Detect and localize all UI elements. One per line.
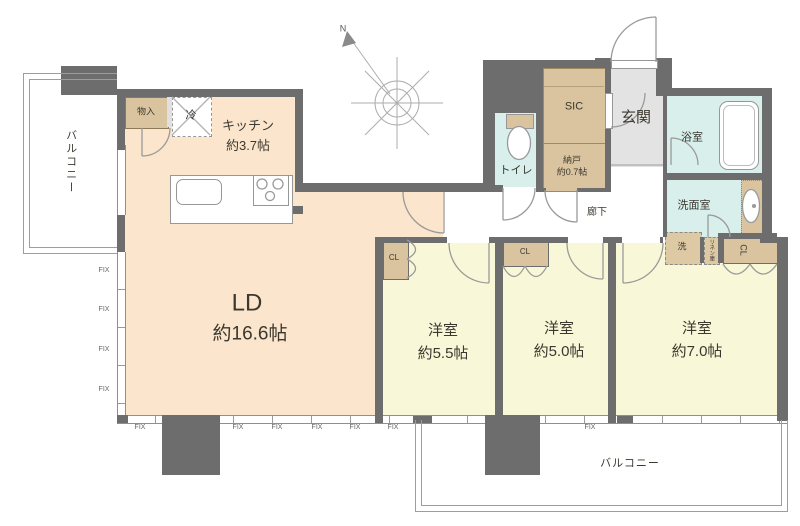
wall-segment — [483, 113, 495, 192]
entry-closet-label: 物入 — [137, 107, 155, 118]
wall-segment — [495, 185, 503, 192]
compass-rose — [342, 31, 443, 149]
storage-door — [545, 190, 577, 222]
storage-label: 納戸 約0.7帖 — [557, 154, 588, 178]
wall-segment — [595, 58, 611, 67]
wall-segment — [577, 188, 611, 192]
washer-label: 洗 — [677, 242, 686, 253]
kitchen-sink — [176, 179, 222, 205]
storage-size: 約0.7帖 — [557, 166, 588, 178]
wall-segment — [295, 97, 303, 192]
shoe-closet-shelf-line — [544, 86, 604, 87]
bedroom2-name: 洋室 — [534, 317, 585, 340]
toilet-door — [503, 188, 535, 220]
wall-segment — [762, 96, 772, 237]
refrigerator-label: 冷 — [186, 109, 197, 122]
fix-label: FIX — [233, 424, 244, 432]
wall-segment — [536, 62, 543, 192]
entrance-door-frame — [611, 60, 658, 69]
balcony-left-label: バルコニー — [63, 130, 76, 195]
kitchen-side-window — [117, 145, 126, 215]
hallway-label: 廊下 — [587, 207, 607, 219]
wall-segment — [660, 237, 663, 243]
shoe-closet-label: SIC — [565, 100, 583, 113]
bedroom1-closet-label: CL — [389, 253, 399, 263]
wall-segment — [543, 188, 546, 192]
wall-segment — [375, 237, 447, 243]
fix-label: FIX — [99, 306, 110, 314]
wall-segment — [503, 237, 568, 243]
stove — [253, 175, 289, 206]
bedroom2-closet-label: CL — [520, 247, 530, 257]
wall-segment — [667, 173, 762, 180]
vanity-counter — [741, 180, 764, 235]
bedroom2-label: 洋室 約5.0帖 — [534, 317, 585, 363]
wall-segment — [608, 237, 616, 423]
fix-label: FIX — [99, 267, 110, 275]
balcony-main-label: バルコニー — [600, 457, 660, 470]
fix-label: FIX — [99, 346, 110, 354]
bedroom1-size: 約5.5帖 — [418, 342, 469, 365]
wall-segment — [663, 88, 667, 237]
wall-segment — [672, 88, 772, 96]
shoe-closet-door-leaf — [605, 93, 613, 129]
fix-label: FIX — [99, 386, 110, 394]
fix-window-left — [117, 252, 126, 415]
living-dining-size: 約16.6帖 — [213, 324, 288, 347]
wall-segment — [117, 215, 125, 252]
wall-segment — [495, 237, 503, 423]
living-dining-entry-floor — [295, 192, 443, 237]
entrance-door-arc — [611, 17, 656, 62]
fix-label: FIX — [585, 424, 596, 432]
bathroom-label: 浴室 — [681, 131, 703, 144]
bathtub-inner — [723, 105, 755, 166]
kitchen-name: キッチン — [222, 116, 274, 136]
bedroom2-size: 約5.0帖 — [534, 340, 585, 363]
bedroom3-size: 約7.0帖 — [672, 340, 723, 363]
north-label: N — [340, 24, 347, 35]
wall-segment — [700, 237, 704, 263]
wall-segment — [616, 237, 622, 243]
linen-label: リネン庫 — [708, 239, 715, 261]
washroom-label: 洗面室 — [678, 199, 711, 212]
wall-segment — [777, 237, 788, 421]
wall-segment — [483, 60, 611, 68]
fix-label: FIX — [135, 424, 146, 432]
floor-plan: バルコニー 物入 冷 キッチン 約3.7帖 LD 約16.6帖 トイレ SIC … — [0, 0, 800, 526]
fix-label: FIX — [388, 424, 399, 432]
kitchen-label: キッチン 約3.7帖 — [222, 116, 274, 156]
bedroom1-name: 洋室 — [418, 319, 469, 342]
toilet-tank — [506, 114, 534, 129]
toilet-label: トイレ — [500, 164, 533, 177]
wall-segment — [605, 127, 611, 192]
bedroom3-label: 洋室 約7.0帖 — [672, 317, 723, 363]
structural-column — [162, 415, 220, 475]
bedroom3-name: 洋室 — [672, 317, 723, 340]
storage-name: 納戸 — [557, 154, 588, 166]
fix-label: FIX — [272, 424, 283, 432]
entrance-label: 玄関 — [621, 109, 651, 127]
fix-label: FIX — [312, 424, 323, 432]
wall-segment — [760, 237, 788, 243]
fix-label: FIX — [350, 424, 361, 432]
wall-segment — [117, 89, 303, 97]
entrance-step-line — [611, 164, 663, 166]
kitchen-size: 約3.7帖 — [222, 136, 274, 156]
wall-segment — [375, 237, 383, 423]
washroom-closet-label: CL — [738, 244, 749, 256]
bedroom1-label: 洋室 約5.5帖 — [418, 319, 469, 365]
wall-segment — [303, 183, 495, 192]
living-dining-name: LD — [232, 290, 263, 319]
wall-segment — [117, 89, 125, 150]
wall-segment — [117, 415, 128, 423]
